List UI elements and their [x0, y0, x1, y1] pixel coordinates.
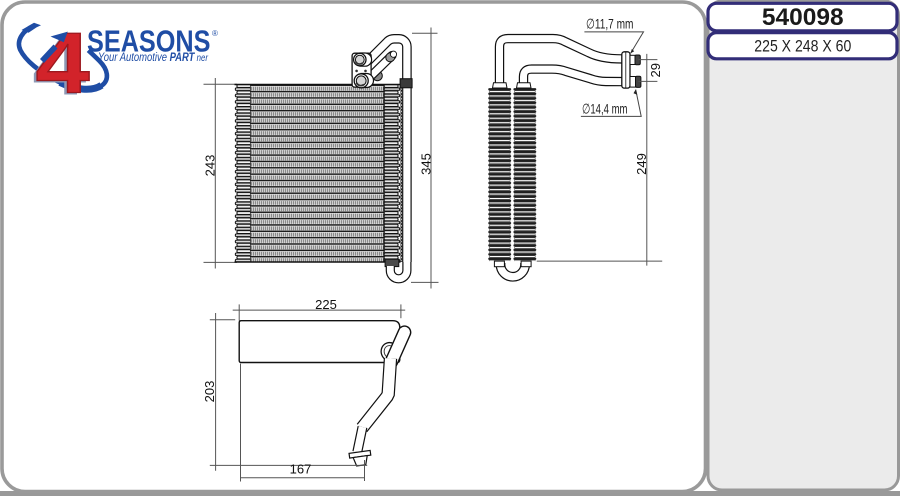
svg-text:Your Automotive PART ner: Your Automotive PART ner: [98, 50, 209, 64]
svg-text:∅14,4 mm: ∅14,4 mm: [582, 101, 628, 117]
svg-text:540098: 540098: [762, 4, 844, 31]
svg-text:225 X 248 X 60: 225 X 248 X 60: [754, 37, 851, 56]
svg-text:∅11,7 mm: ∅11,7 mm: [586, 16, 634, 32]
svg-text:249: 249: [634, 153, 649, 175]
svg-text:167: 167: [290, 462, 312, 477]
svg-text:243: 243: [202, 155, 217, 177]
svg-text:®: ®: [212, 29, 218, 38]
svg-text:4: 4: [36, 16, 90, 112]
svg-text:203: 203: [202, 381, 217, 403]
svg-text:225: 225: [315, 297, 337, 312]
svg-text:345: 345: [418, 153, 433, 175]
svg-text:29: 29: [648, 63, 663, 77]
